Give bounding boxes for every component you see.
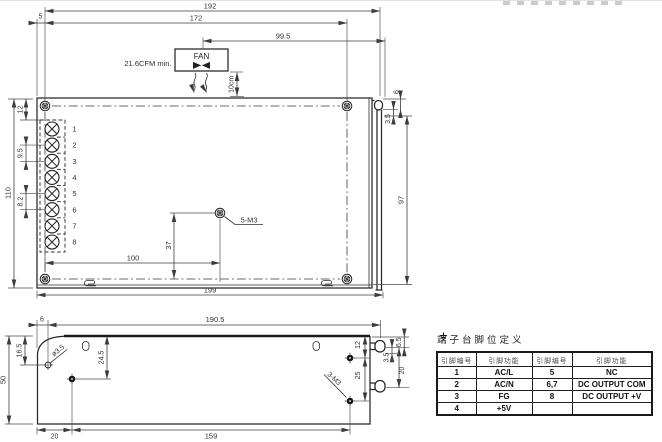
vent-slot	[83, 342, 90, 351]
terminal-screw-icon	[45, 219, 59, 233]
pin-function-cell: DC OUTPUT COM	[572, 379, 652, 391]
pin-function-cell: AC/L	[476, 367, 532, 379]
terminal-screw-icon	[45, 203, 59, 217]
dim-199: 199	[204, 285, 217, 294]
pin-number-cell: 2	[437, 379, 476, 391]
pin-table-row: 1 AC/L 5 NC	[437, 367, 652, 379]
dim-8-2: 8.2	[18, 197, 25, 207]
snap-hooks	[370, 341, 385, 393]
pin-number-cell: 8	[532, 391, 572, 403]
side-view: ø3.5 3-M3 6 190.5	[0, 315, 409, 441]
dim-20-bottom: 20	[51, 434, 59, 441]
dim-172: 172	[190, 14, 203, 23]
dim-5: 5	[39, 14, 43, 21]
screw-hole-icon	[67, 374, 77, 384]
screw-icon	[40, 101, 50, 111]
fan-block: FAN 21.6CFM min. 10cm	[124, 49, 244, 97]
screw-icon	[342, 101, 352, 111]
pin-function-cell: +5V	[476, 403, 532, 416]
dim-6-bracket: 6	[394, 90, 401, 94]
dim-20-hook: 20	[399, 367, 406, 375]
screw-icon	[342, 274, 352, 284]
terminal-number: 1	[72, 125, 76, 134]
top-view-dimensions: 192 172 5 99.5 110 12	[4, 2, 413, 299]
airflow-arrow-icon	[205, 73, 207, 93]
dim-192: 192	[204, 2, 217, 11]
airflow-arrow-icon	[194, 73, 196, 93]
dim-97: 97	[397, 196, 406, 204]
col-pin-number: 引脚编号	[532, 352, 572, 367]
terminal-number: 2	[72, 141, 76, 150]
dim-3-5-hook: 3.5	[384, 353, 391, 363]
side-mounting-callout: 3-M3	[324, 371, 347, 397]
pin-table: 引脚编号 引脚功能 引脚编号 引脚功能 1 AC/L 5 NC 2 AC/N 6…	[436, 351, 653, 416]
dim-110: 110	[4, 187, 13, 199]
dim-50: 50	[0, 376, 8, 384]
pin-function-cell: DC OUTPUT +V	[572, 391, 652, 403]
terminal-number: 4	[72, 173, 76, 182]
hole-dia-callout: ø3.5	[51, 344, 68, 363]
pin-number-cell: 3	[437, 391, 476, 403]
mechanical-drawing-page: 1 2 3 4 5 6 7 8 FAN 21.6CFM min.	[0, 0, 662, 442]
dim-fan-clearance: 10cm	[229, 76, 236, 93]
screw-icon	[215, 208, 225, 218]
terminal-screw-icon	[45, 187, 59, 201]
col-pin-function: 引脚功能	[476, 352, 532, 367]
fan-label: FAN	[194, 52, 210, 61]
pin-number-cell: 4	[437, 403, 476, 416]
dim-190-5: 190.5	[206, 315, 225, 324]
hole-spec-5m3: 5-M3	[240, 215, 257, 224]
dim-37: 37	[164, 241, 173, 249]
side-holes	[43, 353, 355, 406]
dim-12-side: 12	[355, 341, 362, 349]
terminal-screw-icon	[45, 122, 59, 136]
screw-icon	[40, 274, 50, 284]
terminal-screw-icon	[45, 235, 59, 249]
mounting-hole-callout: 5-M3	[215, 208, 263, 224]
centerlines	[45, 106, 347, 279]
dim-9-5: 9.5	[18, 148, 25, 158]
pin-number-cell	[532, 403, 572, 416]
dim-99-5: 99.5	[276, 32, 291, 41]
terminal-number: 5	[72, 189, 76, 198]
pin-number-cell: 6,7	[532, 379, 572, 391]
pin-function-cell: NC	[572, 367, 652, 379]
terminal-number: 6	[72, 205, 76, 214]
dim-6-5-hook: 6.5	[396, 337, 403, 347]
pin-function-cell: AC/N	[476, 379, 532, 391]
terminal-number: 8	[72, 238, 76, 247]
pin-table-row: 4 +5V	[437, 403, 652, 416]
dim-100: 100	[127, 253, 140, 262]
fg-label: FG	[498, 392, 509, 401]
pin-table-title: 端子台脚位定义	[437, 332, 652, 346]
dim-159: 159	[205, 432, 218, 441]
dim-24-5: 24.5	[99, 351, 106, 365]
terminal-screw-icon	[45, 170, 59, 184]
pin-function-cell	[572, 403, 652, 416]
terminal-screw-icon	[45, 154, 59, 168]
pin-number-cell: 5	[532, 367, 572, 379]
cover-screws	[40, 101, 352, 284]
pin-number-cell: 1	[437, 367, 476, 379]
terminal-block: 1 2 3 4 5 6 7 8	[40, 120, 77, 252]
col-pin-number: 引脚编号	[437, 352, 476, 367]
dim-6-side: 6	[40, 317, 44, 324]
pin-table-row: 3 FG 8 DC OUTPUT +V	[437, 391, 652, 403]
dim-12: 12	[18, 106, 25, 114]
col-pin-function: 引脚功能	[572, 352, 652, 367]
terminal-number: 7	[72, 222, 76, 231]
pin-table-row: 2 AC/N 6,7 DC OUTPUT COM	[437, 379, 652, 391]
airflow-note: 21.6CFM min.	[124, 59, 171, 68]
pin-table-header-row: 引脚编号 引脚功能 引脚编号 引脚功能	[437, 352, 652, 367]
vent-slot	[313, 342, 320, 351]
dim-3-5-bracket: 3.5	[385, 114, 392, 124]
screw-hole-icon	[345, 353, 355, 363]
mounting-bracket	[372, 101, 383, 291]
terminal-number: 3	[72, 157, 76, 166]
pin-definition-section: 端子台脚位定义 引脚编号 引脚功能 引脚编号 引脚功能 1 AC/L 5 NC …	[436, 332, 652, 416]
pin-function-cell: FG	[476, 391, 532, 403]
top-view: 1 2 3 4 5 6 7 8 FAN 21.6CFM min.	[4, 2, 413, 299]
side-view-dimensions: 6 190.5 16.5 50 24.5 12	[0, 315, 409, 441]
dim-16-5: 16.5	[17, 344, 24, 358]
terminal-screw-icon	[45, 138, 59, 152]
dim-25: 25	[355, 372, 362, 380]
fan-icon	[193, 62, 210, 69]
case-outline	[37, 98, 383, 290]
